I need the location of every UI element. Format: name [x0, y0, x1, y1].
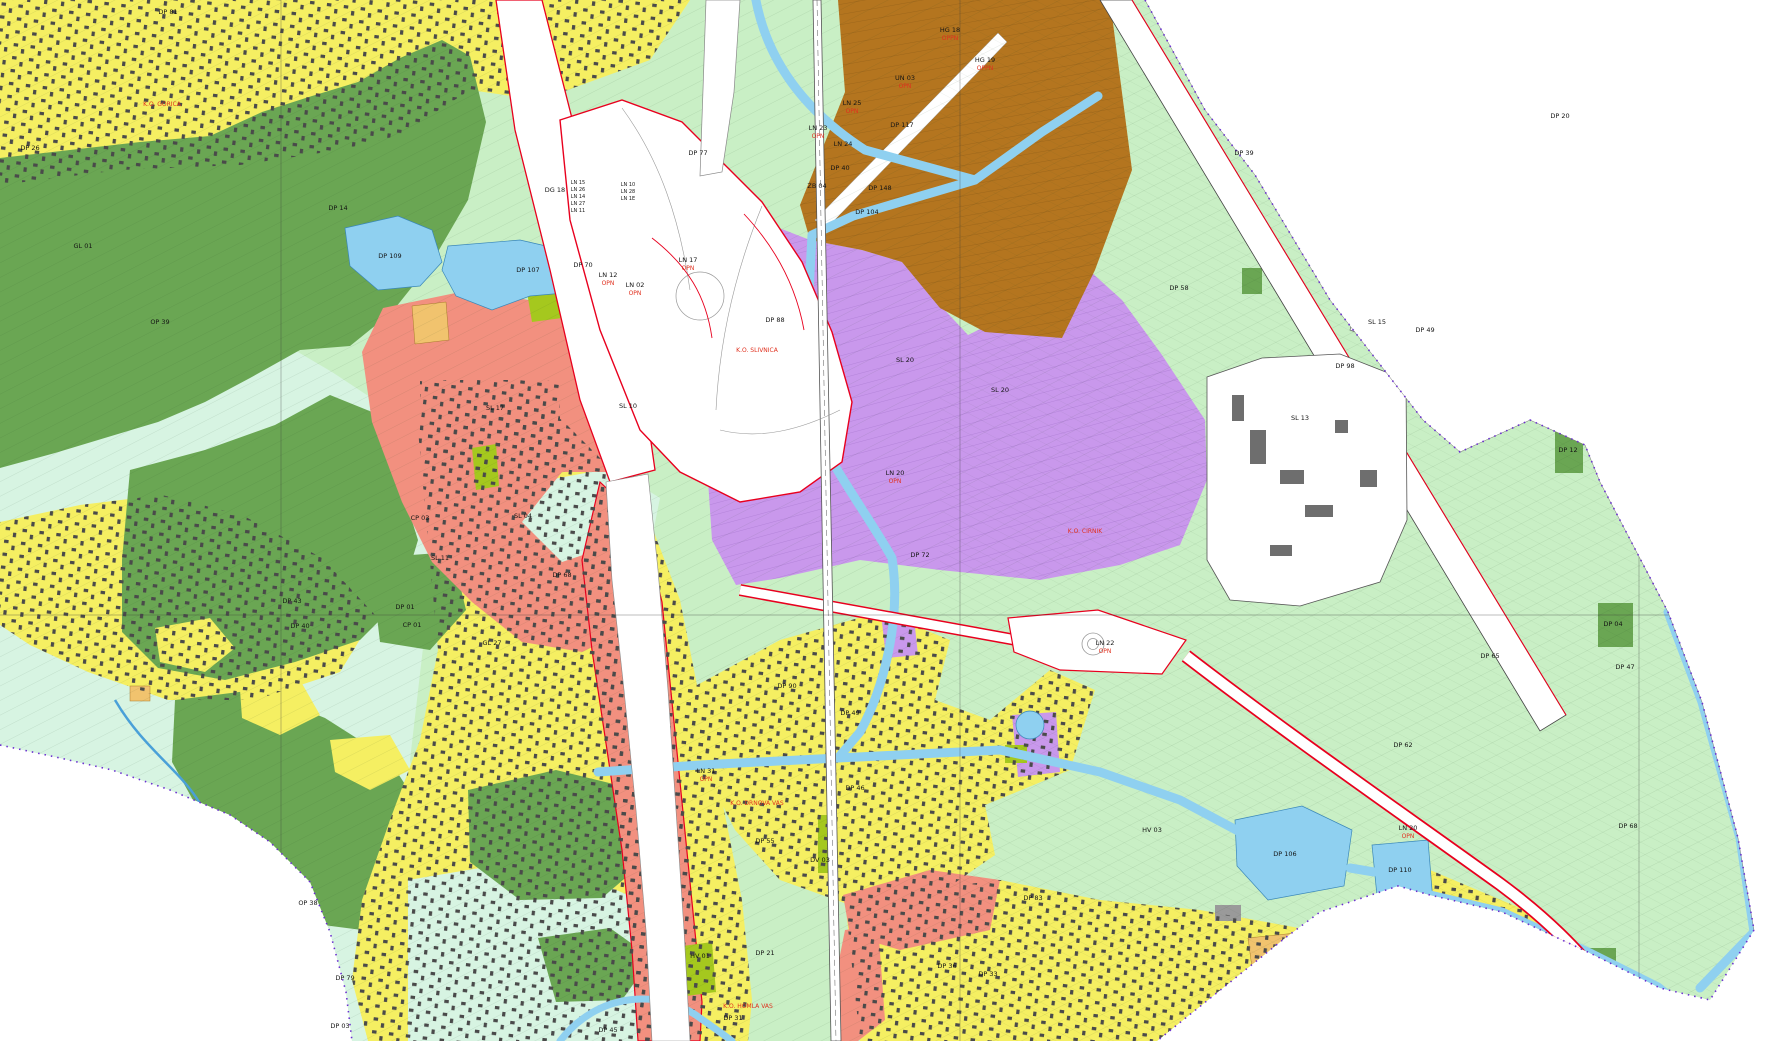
zone-label: DP 36 [937, 962, 956, 970]
zone-label: DP 55 [755, 837, 774, 845]
zone-label: DP 62 [1393, 741, 1412, 749]
zone-label: DP 81 [158, 8, 177, 16]
zone-label: GL 27 [483, 639, 502, 647]
zone-label: DP 70 [573, 261, 592, 269]
zone-label: LN 20 [1399, 824, 1418, 832]
zone-label: SL 10 [619, 402, 637, 410]
zone-label: DP 88 [765, 316, 784, 324]
zone-label: DP 14 [328, 204, 347, 212]
zone-label: OP 38 [298, 899, 317, 907]
zone-label: DP 58 [1169, 284, 1188, 292]
zone-label: HV 01 [690, 952, 710, 960]
zone-label: LN 26 [571, 187, 585, 193]
zone-label: DP 33 [978, 970, 997, 978]
zone-label: DP 65 [1480, 652, 1499, 660]
zone-label: LN 27 [571, 201, 585, 207]
zone-label: GL 01 [74, 242, 93, 250]
zone-label: K.O. GORICA [143, 101, 182, 108]
zone-label: OPN [682, 265, 695, 272]
zone-label: OP 39 [150, 318, 169, 326]
zone-label: DP 43 [282, 597, 301, 605]
zone-label: DP 49 [840, 709, 859, 717]
zone-label: LN 23 [809, 124, 828, 132]
zone-label: DP 77 [688, 149, 707, 157]
zone-label: K.O. CIRNIK [1068, 528, 1104, 535]
zone-label: OPN [700, 776, 713, 783]
zone-label: OPN [812, 133, 825, 140]
zone-label: DP 106 [1273, 850, 1296, 858]
zone-label: DP 107 [516, 266, 539, 274]
zone-label: LN 28 [621, 189, 635, 195]
zone-label: LN 10 [621, 182, 635, 188]
zone-label: DP 45 [598, 1026, 617, 1034]
zone-label: LN 22 [1096, 639, 1115, 647]
zone-label: DP 40 [290, 622, 309, 630]
zoning-map-canvas[interactable]: Municipal spatial zoning plan — cadastra… [0, 0, 1769, 1041]
zone-label: SL 20 [991, 386, 1009, 394]
zone-label: OPPN [942, 35, 958, 42]
zone-label: DP 148 [868, 184, 891, 192]
zone-label: SL 04 [514, 512, 532, 520]
zone-label: HG 19 [975, 56, 995, 64]
zone-label: LN 12 [599, 271, 618, 279]
zone-label: DG 18 [545, 186, 565, 194]
map-layers [0, 0, 1769, 1041]
zone-label: OPN [889, 478, 902, 485]
zone-label: ZB 04 [807, 182, 826, 190]
zone-label: OPN [629, 290, 642, 297]
zone-label: DP 01 [395, 603, 414, 611]
zone-label: HV 03 [1142, 826, 1162, 834]
planned-road-tip [1594, 978, 1610, 998]
zone-label: DP 04 [1603, 620, 1622, 628]
zone-label: LN 24 [834, 140, 853, 148]
zone-label: SL 15 [1368, 318, 1386, 326]
zone-label: DP 117 [890, 121, 913, 129]
zone-label: LN 25 [843, 99, 862, 107]
zone-label: CP 01 [403, 621, 422, 629]
pond [1016, 711, 1044, 739]
zone-label: DP 49 [1415, 326, 1434, 334]
zone-label: LN 15 [571, 180, 585, 186]
zone-label: DP 79 [335, 974, 354, 982]
zone-label: DP 39 [1234, 149, 1253, 157]
zone-label: DP 12 [1558, 446, 1577, 454]
zone-label: K.O. SLIVNICA [736, 347, 779, 354]
zone-label: LN 20 [886, 469, 905, 477]
zone-label: LN 1E [621, 196, 635, 202]
zone-label: SL 11 [431, 554, 449, 562]
zone-label: DP 109 [378, 252, 401, 260]
zone-label: LN 02 [626, 281, 645, 289]
zone-label: UN 03 [895, 74, 915, 82]
zone-label: OPN [1402, 833, 1415, 840]
zone-label: LN 11 [571, 208, 585, 214]
zone-label: DP 110 [1388, 866, 1411, 874]
zone-label: DP 20 [1550, 112, 1569, 120]
zone-label: DP 47 [1615, 663, 1634, 671]
zone-label: DP 72 [910, 551, 929, 559]
zone-label: DP 03 [330, 1022, 349, 1030]
zone-label: K.O. HOMLA VAS [723, 1003, 773, 1010]
zone-label: DP 90 [777, 682, 796, 690]
zone-label: K.O. DRNOVA VAS [730, 800, 784, 807]
zone-label: DP 26 [20, 144, 39, 152]
zone-label: OPN [846, 108, 859, 115]
zone-label: LN 14 [571, 194, 585, 200]
zone-label: DP 83 [1023, 894, 1042, 902]
canal [1350, 868, 1374, 872]
zone-label: LN 31 [697, 767, 716, 775]
zone-label: SL 20 [896, 356, 914, 364]
map-viewport[interactable]: Municipal spatial zoning plan — cadastra… [0, 0, 1769, 1041]
zone-label: DV 03 [810, 856, 830, 864]
zone-label: CP 03 [411, 514, 430, 522]
zone-label: DP 98 [1335, 362, 1354, 370]
zone-label: SL 17 [486, 404, 504, 412]
zone-label: DP 68 [1618, 822, 1637, 830]
zone-label: HG 18 [940, 26, 960, 34]
zone-label: LN 17 [679, 256, 698, 264]
zone-label: DP 40 [830, 164, 849, 172]
zone-label: OPN [602, 280, 615, 287]
zone-label: DP 104 [855, 208, 878, 216]
zone-label: DP 31 [723, 1014, 742, 1022]
zone-label: DP 68 [552, 571, 571, 579]
zone-label: DP 46 [845, 784, 864, 792]
zone-label: OPN [1099, 648, 1112, 655]
zone-label: OPPN [977, 65, 993, 72]
zone-label: OPN [899, 83, 912, 90]
zone-label: SL 13 [1291, 414, 1309, 422]
zone-label: DP 21 [755, 949, 774, 957]
